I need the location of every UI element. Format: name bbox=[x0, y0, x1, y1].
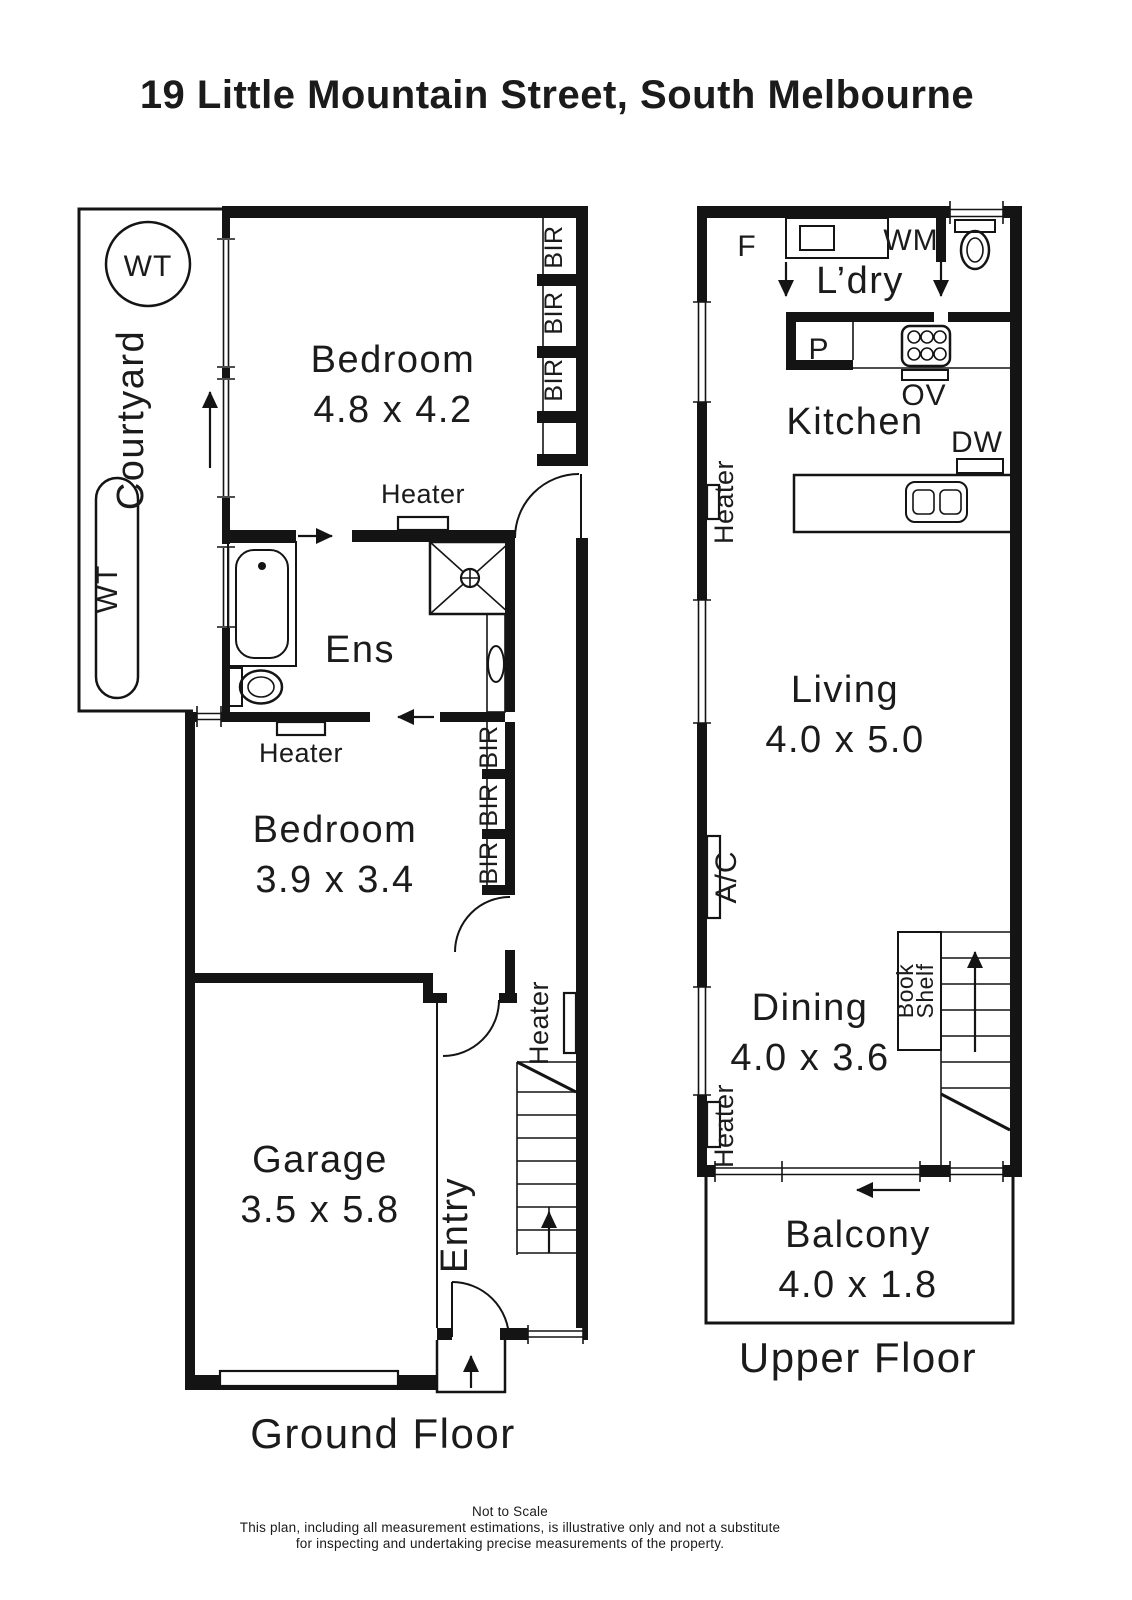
dim-label-dining: 4.0 x 3.6 bbox=[730, 1037, 889, 1079]
heater-unit bbox=[398, 517, 448, 530]
heater-label: Heater bbox=[709, 460, 739, 544]
room-label-dining: Dining bbox=[752, 987, 869, 1029]
window bbox=[217, 547, 235, 627]
wall bbox=[537, 411, 578, 423]
room-label-balcony: Balcony bbox=[785, 1214, 931, 1256]
dim-label-garage: 3.5 x 5.8 bbox=[240, 1189, 399, 1231]
wall bbox=[697, 402, 707, 600]
room-label-ensuite: Ens bbox=[325, 629, 395, 671]
toilet bbox=[228, 668, 282, 706]
room-label-bedroom2: Bedroom bbox=[253, 809, 418, 851]
dim-label-bedroom1: 4.8 x 4.2 bbox=[313, 389, 472, 431]
heater-label: Heater bbox=[381, 479, 465, 509]
window bbox=[217, 379, 235, 497]
room-label-bedroom1: Bedroom bbox=[311, 339, 476, 381]
door-arc-bedroom1 bbox=[515, 474, 579, 538]
wall bbox=[792, 312, 934, 322]
shower bbox=[430, 542, 510, 614]
fridge-label: F bbox=[737, 230, 756, 263]
door-arc-hall bbox=[443, 1000, 499, 1056]
laundry-bench bbox=[786, 218, 888, 258]
window bbox=[197, 706, 221, 727]
wall bbox=[948, 312, 1013, 322]
wall bbox=[697, 206, 707, 302]
ground-floor-plan: WT WT Courtyard bbox=[79, 206, 588, 1457]
heater-label: Heater bbox=[709, 1084, 739, 1168]
page-title: 19 Little Mountain Street, South Melbour… bbox=[140, 73, 974, 117]
dim-label-balcony: 4.0 x 1.8 bbox=[778, 1264, 937, 1306]
bir-label: BIR bbox=[475, 841, 503, 884]
room-label-laundry: L’dry bbox=[816, 260, 904, 302]
dim-label-bedroom2: 3.9 x 3.4 bbox=[255, 859, 414, 901]
floor-plan-drawing: 19 Little Mountain Street, South Melbour… bbox=[0, 0, 1132, 1600]
wall bbox=[482, 885, 515, 895]
water-tank-label: WT bbox=[124, 250, 173, 283]
window bbox=[528, 1325, 583, 1344]
wall bbox=[185, 973, 433, 983]
wall bbox=[222, 368, 230, 378]
wall bbox=[437, 1328, 452, 1340]
wall bbox=[1010, 206, 1022, 1177]
dim-label-living: 4.0 x 5.0 bbox=[765, 719, 924, 761]
cooktop bbox=[902, 326, 950, 366]
window bbox=[693, 987, 711, 1095]
wall bbox=[500, 1328, 528, 1340]
sink bbox=[906, 482, 967, 522]
wall bbox=[537, 346, 578, 358]
washing-machine-unit bbox=[800, 226, 834, 250]
aircon-label: A/C bbox=[710, 850, 743, 903]
entry-porch bbox=[437, 1340, 505, 1392]
door-arc-bedroom2 bbox=[455, 897, 510, 952]
window bbox=[693, 302, 711, 402]
wall bbox=[537, 274, 578, 286]
disclaimer-line: for inspecting and undertaking precise m… bbox=[296, 1536, 724, 1551]
room-label-garage: Garage bbox=[252, 1139, 388, 1181]
floor-label-upper: Upper Floor bbox=[739, 1334, 977, 1381]
wall bbox=[1003, 1165, 1022, 1177]
bir-label: BIR bbox=[475, 725, 503, 768]
heater-label: Heater bbox=[259, 738, 343, 768]
pantry-label: P bbox=[808, 333, 829, 366]
wall bbox=[226, 530, 296, 542]
window bbox=[693, 600, 711, 723]
room-label-courtyard: Courtyard bbox=[110, 330, 152, 510]
bir-label: BIR bbox=[540, 225, 568, 268]
bir-label: BIR bbox=[540, 358, 568, 401]
wall bbox=[499, 993, 517, 1003]
water-tank-pill-label: WT bbox=[91, 565, 124, 614]
wall bbox=[697, 1095, 707, 1177]
wall bbox=[482, 829, 515, 839]
disclaimer-line: This plan, including all measurement est… bbox=[240, 1520, 780, 1535]
heater-unit bbox=[564, 993, 576, 1053]
window bbox=[950, 1161, 1003, 1182]
dishwasher-unit bbox=[957, 459, 1003, 473]
stairs-ground bbox=[517, 1062, 576, 1255]
wall bbox=[222, 206, 588, 218]
wall bbox=[505, 530, 515, 712]
disclaimer-line: Not to Scale bbox=[472, 1504, 548, 1519]
bathtub bbox=[228, 542, 296, 666]
upper-floor-plan: F WM L’dry P OV bbox=[693, 201, 1022, 1381]
floorplan-page: 19 Little Mountain Street, South Melbour… bbox=[0, 0, 1132, 1600]
washing-machine-label: WM bbox=[883, 224, 938, 257]
wall bbox=[537, 454, 578, 466]
wall bbox=[222, 206, 230, 238]
disclaimer: Not to Scale This plan, including all me… bbox=[240, 1504, 780, 1551]
wall bbox=[185, 712, 195, 1390]
wall bbox=[576, 206, 588, 466]
bookshelf-label: Shelf bbox=[912, 963, 938, 1018]
window bbox=[217, 239, 235, 367]
wall bbox=[352, 530, 515, 542]
floor-label-ground: Ground Floor bbox=[250, 1410, 515, 1457]
wall bbox=[423, 993, 447, 1003]
heater-label: Heater bbox=[524, 981, 554, 1065]
wall bbox=[697, 1165, 715, 1177]
sliding-door bbox=[715, 1161, 920, 1190]
vanity bbox=[487, 614, 505, 712]
wall bbox=[482, 769, 515, 779]
kitchen-island bbox=[794, 475, 1012, 532]
bir-label: BIR bbox=[540, 291, 568, 334]
room-label-entry: Entry bbox=[434, 1177, 476, 1273]
dishwasher-label: DW bbox=[951, 426, 1003, 459]
stairs-upper bbox=[941, 932, 1010, 1165]
room-label-kitchen: Kitchen bbox=[786, 401, 923, 443]
room-label-living: Living bbox=[791, 669, 899, 711]
garage-door bbox=[220, 1371, 398, 1386]
bir-label: BIR bbox=[475, 783, 503, 826]
wall bbox=[505, 722, 515, 895]
toilet bbox=[955, 220, 995, 269]
wall bbox=[920, 1165, 950, 1177]
wall bbox=[936, 206, 946, 262]
heater-unit bbox=[277, 722, 325, 735]
wall bbox=[440, 712, 505, 722]
wall bbox=[576, 538, 588, 1328]
wall bbox=[697, 723, 707, 987]
